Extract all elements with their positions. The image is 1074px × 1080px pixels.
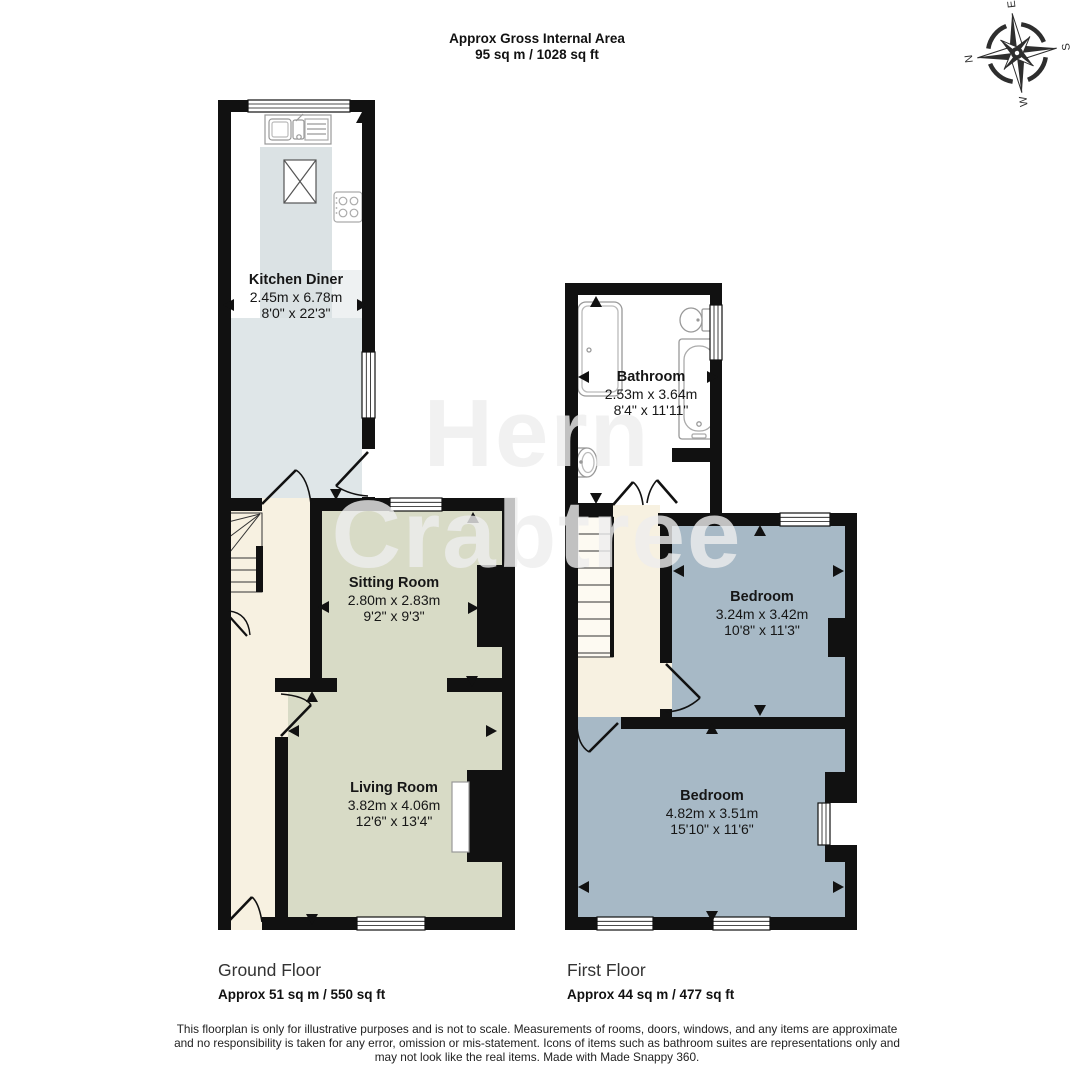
ground-floor-area: Approx 51 sq m / 550 sq ft: [218, 987, 385, 1002]
disclaimer-line3: may not look like the real items. Made w…: [0, 1051, 1074, 1065]
title-line2: 95 sq m / 1028 sq ft: [0, 47, 1074, 63]
room-dim-metric: 3.24m x 3.42m: [652, 606, 872, 623]
room-label-sitting-room: Sitting Room 2.80m x 2.83m 9'2" x 9'3": [284, 575, 504, 625]
ground-floor-caption: Ground Floor Approx 51 sq m / 550 sq ft: [218, 960, 385, 1002]
room-dim-metric: 2.53m x 3.64m: [541, 386, 761, 403]
kitchen-island-icon: [284, 160, 316, 203]
hob-icon: [334, 192, 362, 222]
compass-e-label: E: [1006, 0, 1019, 9]
stairs-ground: [227, 513, 263, 592]
floorplan-page: N S E W Hern Crabtree Approx Gross Inter…: [0, 0, 1074, 1080]
room-name: Sitting Room: [284, 575, 504, 592]
room-label-bedroom-2: Bedroom 4.82m x 3.51m 15'10" x 11'6": [602, 788, 822, 838]
first-floor-area: Approx 44 sq m / 477 sq ft: [567, 987, 734, 1002]
room-dim-imperial: 8'0" x 22'3": [186, 305, 406, 322]
room-label-living-room: Living Room 3.82m x 4.06m 12'6" x 13'4": [284, 780, 504, 830]
room-name: Living Room: [284, 780, 504, 797]
room-dim-metric: 3.82m x 4.06m: [284, 797, 504, 814]
room-dim-imperial: 15'10" x 11'6": [602, 821, 822, 838]
room-dim-metric: 4.82m x 3.51m: [602, 805, 822, 822]
room-dim-imperial: 9'2" x 9'3": [284, 608, 504, 625]
room-name: Bedroom: [652, 589, 872, 606]
room-dim-imperial: 12'6" x 13'4": [284, 813, 504, 830]
stairs-first: [577, 517, 614, 657]
title-line1: Approx Gross Internal Area: [0, 31, 1074, 47]
room-dim-metric: 2.45m x 6.78m: [186, 289, 406, 306]
disclaimer-line2: and no responsibility is taken for any e…: [0, 1037, 1074, 1051]
compass-w-label: W: [1017, 95, 1030, 107]
room-dim-imperial: 8'4" x 11'11": [541, 402, 761, 419]
disclaimer: This floorplan is only for illustrative …: [0, 1023, 1074, 1064]
room-label-bathroom: Bathroom 2.53m x 3.64m 8'4" x 11'11": [541, 369, 761, 419]
sink-icon: [265, 114, 331, 144]
disclaimer-line1: This floorplan is only for illustrative …: [0, 1023, 1074, 1037]
floorplan-graphic: N S E W: [0, 0, 1074, 1080]
room-name: Bathroom: [541, 369, 761, 386]
room-label-kitchen-diner: Kitchen Diner 2.45m x 6.78m 8'0" x 22'3": [186, 272, 406, 322]
page-title: Approx Gross Internal Area 95 sq m / 102…: [0, 31, 1074, 63]
room-name: Bedroom: [602, 788, 822, 805]
room-label-bedroom-1: Bedroom 3.24m x 3.42m 10'8" x 11'3": [652, 589, 872, 639]
room-name: Kitchen Diner: [186, 272, 406, 289]
room-dim-metric: 2.80m x 2.83m: [284, 592, 504, 609]
ground-floor-label: Ground Floor: [218, 960, 385, 981]
room-dim-imperial: 10'8" x 11'3": [652, 622, 872, 639]
toilet-icon: [680, 308, 711, 332]
basin-icon: [577, 448, 597, 477]
first-floor-label: First Floor: [567, 960, 734, 981]
first-floor-caption: First Floor Approx 44 sq m / 477 sq ft: [567, 960, 734, 1002]
